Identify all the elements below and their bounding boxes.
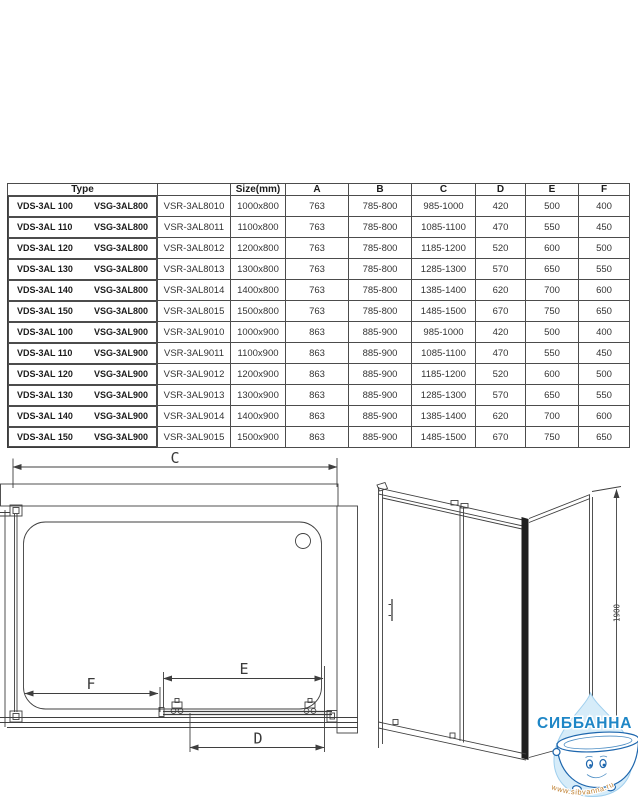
cell-e: 500 [526, 322, 579, 343]
cell-f: 600 [579, 406, 630, 427]
cell-vsr: VSR-3AL9014 [158, 406, 231, 427]
cell-a: 763 [286, 301, 349, 322]
cell-b: 785-800 [349, 217, 412, 238]
cell-a: 863 [286, 427, 349, 448]
cell-e: 600 [526, 238, 579, 259]
cell-b: 785-800 [349, 259, 412, 280]
cell-d: 620 [476, 406, 526, 427]
cell-e: 650 [526, 385, 579, 406]
cell-e: 650 [526, 259, 579, 280]
front-left-profile [379, 487, 383, 748]
side-panel-top-edge [529, 495, 590, 523]
cell-a: 863 [286, 322, 349, 343]
cell-f: 600 [579, 280, 630, 301]
col-header-d: D [476, 184, 526, 196]
cell-b: 785-800 [349, 238, 412, 259]
cell-type: VDS-3AL 110VSG-3AL900 [8, 343, 157, 364]
table-row: VDS-3AL 130VSG-3AL900VSR-3AL90131300x900… [8, 385, 630, 406]
cell-vsr: VSR-3AL8014 [158, 280, 231, 301]
drain-circle [296, 534, 311, 549]
cell-e: 500 [526, 196, 579, 217]
cell-size: 1000x900 [231, 322, 286, 343]
table-row: VDS-3AL 130VSG-3AL800VSR-3AL80131300x800… [8, 259, 630, 280]
col-header-a: A [286, 184, 349, 196]
spec-table: Type Size(mm) A B C D E F VDS-3AL 100VSG… [7, 183, 630, 448]
corner-post [522, 517, 529, 760]
cell-size: 1300x800 [231, 259, 286, 280]
side-panel-top-view [0, 505, 22, 727]
spec-sheet-page: Type Size(mm) A B C D E F VDS-3AL 100VSG… [0, 0, 638, 800]
table-row: VDS-3AL 110VSG-3AL800VSR-3AL80111100x800… [8, 217, 630, 238]
cell-type: VDS-3AL 110VSG-3AL800 [8, 217, 157, 238]
cell-d: 570 [476, 385, 526, 406]
cell-c: 1485-1500 [412, 301, 476, 322]
cell-size: 1500x800 [231, 301, 286, 322]
cell-d: 470 [476, 217, 526, 238]
cell-type: VDS-3AL 140VSG-3AL900 [8, 406, 157, 427]
cell-c: 1085-1100 [412, 217, 476, 238]
cell-d: 670 [476, 427, 526, 448]
brand-name: СИББАННА [537, 715, 632, 732]
cell-c: 1085-1100 [412, 343, 476, 364]
cell-d: 670 [476, 301, 526, 322]
cell-type: VDS-3AL 120VSG-3AL900 [8, 364, 157, 385]
cell-vsr: VSR-3AL8011 [158, 217, 231, 238]
bottom-rail [379, 722, 527, 760]
wall-profile-right [327, 711, 337, 723]
cell-size: 1100x900 [231, 343, 286, 364]
bottom-roller [393, 720, 398, 725]
cell-vsr: VSR-3AL8013 [158, 259, 231, 280]
cell-f: 400 [579, 322, 630, 343]
cell-c: 1285-1300 [412, 385, 476, 406]
cell-f: 550 [579, 259, 630, 280]
cell-size: 1400x900 [231, 406, 286, 427]
table-row: VDS-3AL 150VSG-3AL800VSR-3AL80151500x800… [8, 301, 630, 322]
eye [600, 760, 606, 768]
table-row: VDS-3AL 120VSG-3AL800VSR-3AL80121200x800… [8, 238, 630, 259]
cell-f: 650 [579, 301, 630, 322]
top-rail [379, 488, 524, 529]
cell-d: 420 [476, 196, 526, 217]
cell-c: 1185-1200 [412, 364, 476, 385]
cell-b: 885-900 [349, 322, 412, 343]
cell-f: 450 [579, 343, 630, 364]
cell-d: 520 [476, 364, 526, 385]
cell-d: 570 [476, 259, 526, 280]
cell-type: VDS-3AL 150VSG-3AL800 [8, 301, 157, 322]
table-row: VDS-3AL 150VSG-3AL900VSR-3AL90151500x900… [8, 427, 630, 448]
cell-type: VDS-3AL 130VSG-3AL800 [8, 259, 157, 280]
cell-b: 785-800 [349, 280, 412, 301]
table-row: VDS-3AL 140VSG-3AL900VSR-3AL90141400x900… [8, 406, 630, 427]
col-header-f: F [579, 184, 630, 196]
top-view-drawing: C [0, 450, 358, 752]
cell-c: 985-1000 [412, 196, 476, 217]
cell-c: 1185-1200 [412, 238, 476, 259]
cell-d: 470 [476, 343, 526, 364]
cell-e: 750 [526, 427, 579, 448]
brick-wall-top [1, 484, 339, 506]
cell-f: 650 [579, 427, 630, 448]
table-row: VDS-3AL 100VSG-3AL800VSR-3AL80101000x800… [8, 196, 630, 217]
cell-size: 1100x800 [231, 217, 286, 238]
technical-drawings: C [0, 450, 638, 800]
cell-type: VDS-3AL 140VSG-3AL800 [8, 280, 157, 301]
cell-a: 763 [286, 259, 349, 280]
table-header-row: Type Size(mm) A B C D E F [8, 184, 630, 196]
cell-e: 700 [526, 280, 579, 301]
col-header-type: Type [8, 184, 158, 196]
cell-b: 785-800 [349, 301, 412, 322]
col-header-model [158, 184, 231, 196]
cell-a: 763 [286, 238, 349, 259]
cell-type: VDS-3AL 130VSG-3AL900 [8, 385, 157, 406]
dimension-label-d: D [253, 730, 262, 748]
cell-c: 985-1000 [412, 322, 476, 343]
cell-b: 785-800 [349, 196, 412, 217]
door-edge [460, 506, 464, 743]
cell-size: 1500x900 [231, 427, 286, 448]
cell-vsr: VSR-3AL9013 [158, 385, 231, 406]
dimension-label-height: 1900 [613, 603, 622, 622]
cell-type: VDS-3AL 150VSG-3AL900 [8, 427, 157, 448]
table-row: VDS-3AL 100VSG-3AL900VSR-3AL90101000x900… [8, 322, 630, 343]
cell-size: 1200x900 [231, 364, 286, 385]
cell-a: 863 [286, 385, 349, 406]
dimension-label-f: F [86, 675, 95, 693]
cell-vsr: VSR-3AL9011 [158, 343, 231, 364]
col-header-size: Size(mm) [231, 184, 286, 196]
cell-f: 500 [579, 364, 630, 385]
cell-size: 1300x900 [231, 385, 286, 406]
cell-type: VDS-3AL 120VSG-3AL800 [8, 238, 157, 259]
dimension-label-c: C [170, 450, 179, 467]
cell-size: 1000x800 [231, 196, 286, 217]
cell-d: 620 [476, 280, 526, 301]
cell-size: 1200x800 [231, 238, 286, 259]
cell-f: 500 [579, 238, 630, 259]
cell-c: 1485-1500 [412, 427, 476, 448]
cell-a: 763 [286, 196, 349, 217]
cell-vsr: VSR-3AL8010 [158, 196, 231, 217]
cell-f: 550 [579, 385, 630, 406]
eye [587, 760, 593, 768]
cell-a: 763 [286, 217, 349, 238]
cell-d: 520 [476, 238, 526, 259]
cell-vsr: VSR-3AL9012 [158, 364, 231, 385]
cell-vsr: VSR-3AL9015 [158, 427, 231, 448]
cell-b: 885-900 [349, 385, 412, 406]
cell-e: 550 [526, 217, 579, 238]
cell-e: 750 [526, 301, 579, 322]
col-header-b: B [349, 184, 412, 196]
cell-a: 863 [286, 343, 349, 364]
watermark: СИББАННА www.sibvanna.ru [537, 693, 638, 797]
col-header-c: C [412, 184, 476, 196]
cell-e: 700 [526, 406, 579, 427]
cell-type: VDS-3AL 100VSG-3AL900 [8, 322, 157, 343]
spec-table-body: VDS-3AL 100VSG-3AL800VSR-3AL80101000x800… [8, 196, 630, 448]
cell-e: 550 [526, 343, 579, 364]
dimension-label-e: E [239, 660, 248, 678]
cell-b: 885-900 [349, 406, 412, 427]
cell-a: 863 [286, 364, 349, 385]
cell-vsr: VSR-3AL9010 [158, 322, 231, 343]
shower-tray [24, 522, 322, 709]
cell-size: 1400x800 [231, 280, 286, 301]
cell-c: 1385-1400 [412, 406, 476, 427]
cell-type: VDS-3AL 100VSG-3AL800 [8, 196, 157, 217]
cell-d: 420 [476, 322, 526, 343]
cell-f: 450 [579, 217, 630, 238]
cell-b: 885-900 [349, 343, 412, 364]
cell-a: 863 [286, 406, 349, 427]
cell-a: 763 [286, 280, 349, 301]
cell-e: 600 [526, 364, 579, 385]
col-header-e: E [526, 184, 579, 196]
cell-c: 1285-1300 [412, 259, 476, 280]
cell-f: 400 [579, 196, 630, 217]
cell-vsr: VSR-3AL8012 [158, 238, 231, 259]
cell-b: 885-900 [349, 427, 412, 448]
cell-c: 1385-1400 [412, 280, 476, 301]
brick-wall-right [337, 506, 358, 733]
table-row: VDS-3AL 140VSG-3AL800VSR-3AL80141400x800… [8, 280, 630, 301]
table-row: VDS-3AL 120VSG-3AL900VSR-3AL90121200x900… [8, 364, 630, 385]
cell-b: 885-900 [349, 364, 412, 385]
table-row: VDS-3AL 110VSG-3AL900VSR-3AL90111100x900… [8, 343, 630, 364]
cell-vsr: VSR-3AL8015 [158, 301, 231, 322]
